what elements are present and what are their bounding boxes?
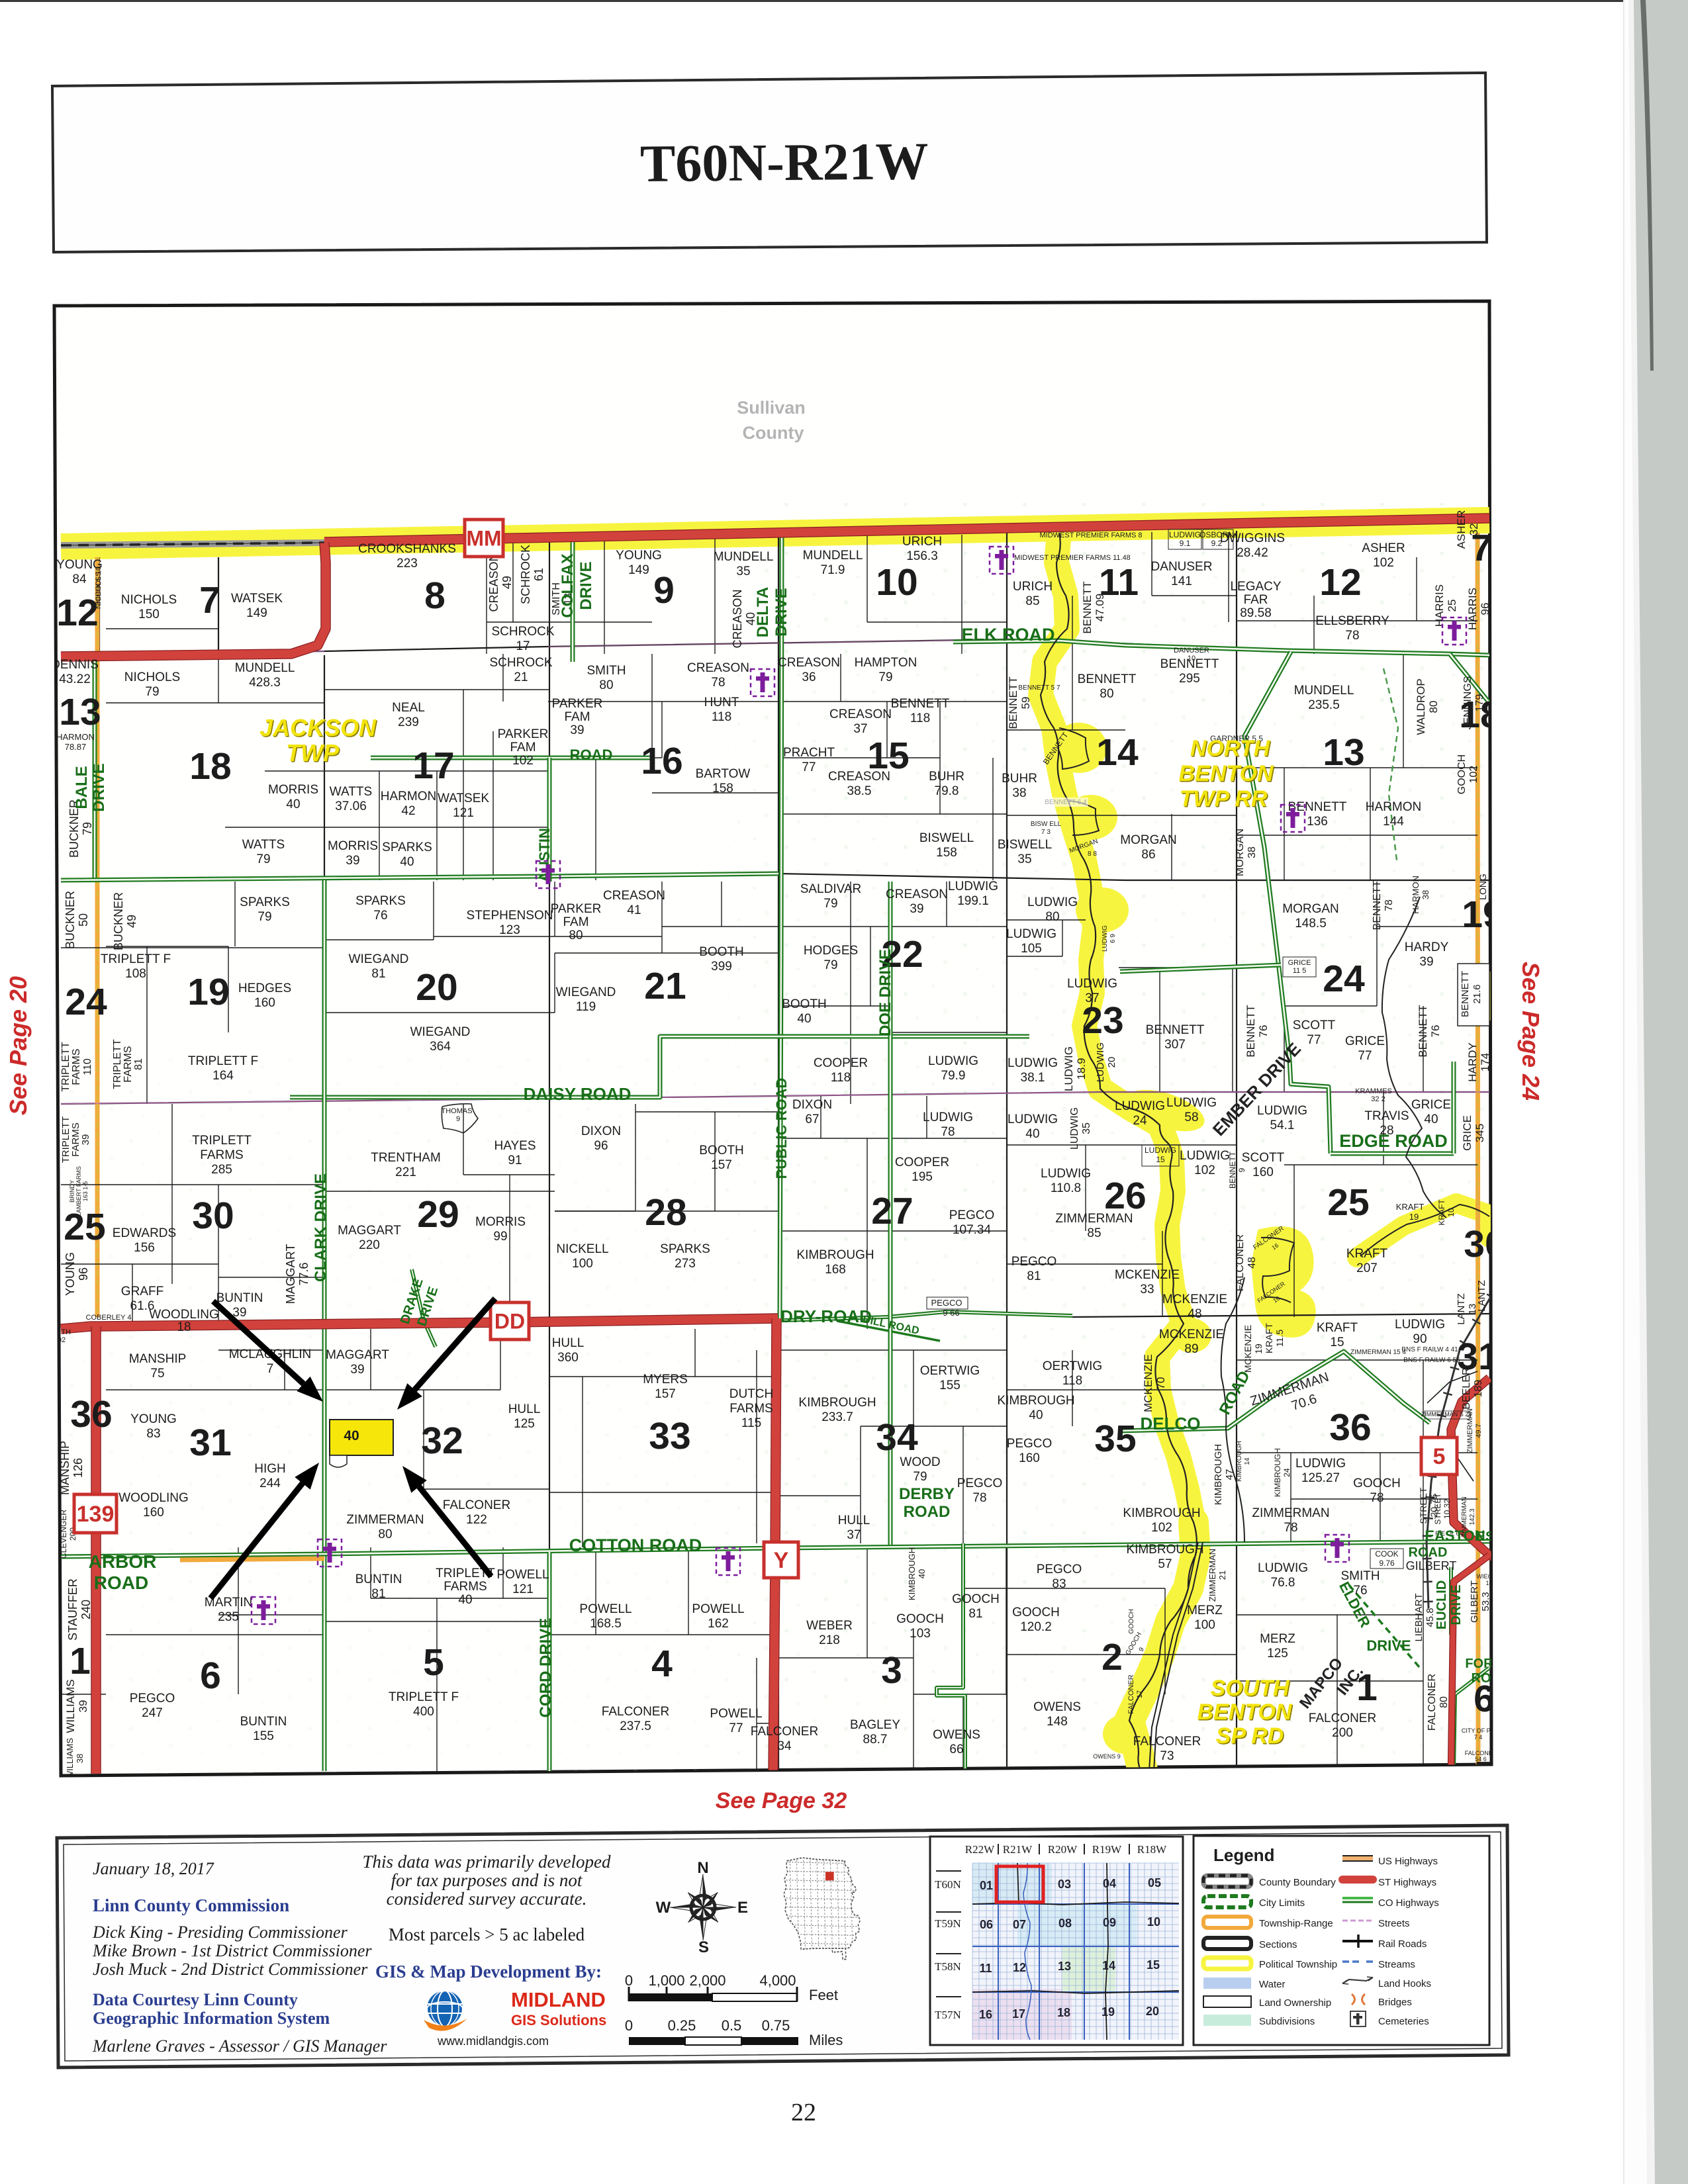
svg-text:CREASON: CREASON bbox=[778, 656, 840, 670]
svg-text:LUDWIG: LUDWIG bbox=[1102, 925, 1109, 952]
svg-text:21: 21 bbox=[1217, 1570, 1227, 1580]
svg-text:TRENTHAM: TRENTHAM bbox=[371, 1151, 441, 1165]
svg-text:26: 26 bbox=[1104, 1175, 1146, 1217]
svg-text:78: 78 bbox=[972, 1491, 986, 1505]
svg-text:Legend: Legend bbox=[1213, 1845, 1274, 1865]
svg-text:US Highways: US Highways bbox=[1378, 1856, 1438, 1867]
svg-text:HARMON: HARMON bbox=[56, 732, 95, 742]
svg-text:SCHROCK: SCHROCK bbox=[489, 656, 552, 670]
svg-text:15: 15 bbox=[1147, 1958, 1160, 1972]
svg-text:BRINDY: BRINDY bbox=[69, 1180, 75, 1203]
svg-text:364: 364 bbox=[430, 1040, 451, 1054]
svg-text:103: 103 bbox=[910, 1627, 931, 1641]
svg-text:155: 155 bbox=[939, 1379, 961, 1392]
svg-text:100: 100 bbox=[572, 1257, 593, 1271]
svg-text:R20W: R20W bbox=[1048, 1843, 1078, 1856]
svg-text:25: 25 bbox=[1327, 1181, 1369, 1224]
svg-text:Dick King - Presiding Commissi: Dick King - Presiding Commissioner bbox=[92, 1923, 348, 1942]
svg-text:DRIVE: DRIVE bbox=[1449, 1584, 1464, 1625]
svg-text:R18W: R18W bbox=[1137, 1843, 1167, 1856]
svg-text:MAGGART: MAGGART bbox=[284, 1244, 297, 1304]
svg-text:www.midlandgis.com: www.midlandgis.com bbox=[437, 2034, 549, 2048]
svg-text:71.9: 71.9 bbox=[821, 563, 845, 577]
svg-text:25: 25 bbox=[64, 1206, 105, 1248]
svg-text:WEBER: WEBER bbox=[806, 1619, 853, 1633]
svg-text:KIMBROUGH: KIMBROUGH bbox=[1273, 1448, 1282, 1497]
svg-text:CREASON: CREASON bbox=[828, 770, 890, 784]
svg-text:39: 39 bbox=[570, 723, 584, 737]
svg-text:CREASON: CREASON bbox=[487, 553, 500, 612]
svg-text:BENTON: BENTON bbox=[1197, 1700, 1293, 1725]
svg-text:PEGCO: PEGCO bbox=[1037, 1563, 1082, 1576]
svg-text:200: 200 bbox=[1332, 1726, 1353, 1740]
svg-text:YOUNG: YOUNG bbox=[130, 1412, 177, 1426]
svg-text:160: 160 bbox=[1252, 1165, 1274, 1179]
svg-text:T60N: T60N bbox=[935, 1878, 961, 1891]
svg-text:Streets: Streets bbox=[1378, 1918, 1410, 1929]
svg-text:T60N-R21W: T60N-R21W bbox=[640, 132, 929, 193]
svg-text:78: 78 bbox=[1383, 899, 1395, 911]
svg-text:OERTWIG: OERTWIG bbox=[920, 1364, 980, 1378]
svg-text:MUNDELL: MUNDELL bbox=[714, 550, 774, 564]
svg-text:38: 38 bbox=[1421, 890, 1430, 899]
svg-text:24: 24 bbox=[1282, 1468, 1291, 1477]
svg-text:DIXON: DIXON bbox=[792, 1098, 832, 1112]
svg-text:TWP RR: TWP RR bbox=[1180, 786, 1268, 811]
svg-text:239: 239 bbox=[398, 715, 419, 729]
svg-text:32: 32 bbox=[1468, 523, 1480, 536]
svg-text:18: 18 bbox=[189, 745, 231, 788]
svg-text:1: 1 bbox=[70, 1640, 91, 1682]
svg-text:123: 123 bbox=[499, 923, 520, 937]
svg-text:81: 81 bbox=[371, 967, 385, 981]
svg-text:ROAD: ROAD bbox=[1409, 1545, 1448, 1560]
svg-text:125: 125 bbox=[1267, 1647, 1288, 1661]
svg-text:5: 5 bbox=[1433, 1444, 1446, 1469]
svg-text:Josh Muck - 2nd District Commi: Josh Muck - 2nd District Commissioner bbox=[93, 1960, 368, 1979]
svg-text:E: E bbox=[737, 1899, 748, 1917]
svg-text:BENNETT: BENNETT bbox=[1288, 800, 1347, 814]
svg-text:6 9: 6 9 bbox=[1109, 934, 1117, 943]
svg-text:10: 10 bbox=[876, 561, 917, 604]
svg-text:BUHR: BUHR bbox=[1002, 772, 1037, 786]
svg-text:FARMS: FARMS bbox=[71, 1048, 82, 1085]
svg-text:125: 125 bbox=[514, 1417, 535, 1431]
svg-text:ZIMMERMAN: ZIMMERMAN bbox=[346, 1513, 424, 1527]
svg-text:BALE: BALE bbox=[73, 766, 91, 809]
svg-text:76: 76 bbox=[1257, 1025, 1270, 1038]
svg-text:76.8: 76.8 bbox=[1271, 1576, 1295, 1590]
svg-text:Feet: Feet bbox=[809, 1987, 838, 2003]
svg-text:T58N: T58N bbox=[935, 1960, 961, 1973]
svg-text:COOPER: COOPER bbox=[814, 1056, 868, 1070]
svg-text:122: 122 bbox=[466, 1513, 487, 1527]
svg-text:LUDWIG: LUDWIG bbox=[1295, 1457, 1346, 1471]
svg-text:BENNETT: BENNETT bbox=[1078, 672, 1137, 686]
svg-text:160: 160 bbox=[143, 1506, 164, 1520]
svg-text:195: 195 bbox=[912, 1170, 933, 1184]
svg-text:15: 15 bbox=[1330, 1336, 1344, 1349]
svg-text:273: 273 bbox=[675, 1257, 696, 1271]
svg-text:84: 84 bbox=[72, 572, 87, 586]
svg-text:EDWARDS: EDWARDS bbox=[113, 1226, 176, 1240]
svg-text:400: 400 bbox=[413, 1705, 434, 1719]
svg-text:2: 2 bbox=[1102, 1636, 1123, 1678]
svg-text:DENNIS: DENNIS bbox=[51, 658, 99, 672]
svg-text:77.6: 77.6 bbox=[297, 1262, 310, 1285]
svg-text:156.3: 156.3 bbox=[906, 549, 938, 563]
svg-text:61: 61 bbox=[532, 568, 545, 581]
svg-text:121: 121 bbox=[512, 1582, 534, 1596]
svg-text:96: 96 bbox=[77, 1267, 90, 1281]
svg-text:20: 20 bbox=[1106, 1057, 1117, 1068]
svg-text:73: 73 bbox=[1160, 1749, 1174, 1763]
svg-text:107.34: 107.34 bbox=[953, 1223, 992, 1237]
svg-text:118: 118 bbox=[831, 1071, 851, 1085]
svg-text:Streams: Streams bbox=[1378, 1959, 1415, 1970]
svg-text:220: 220 bbox=[359, 1238, 380, 1252]
svg-text:10: 10 bbox=[1147, 1915, 1160, 1929]
svg-text:79: 79 bbox=[913, 1470, 927, 1484]
svg-text:78.87: 78.87 bbox=[65, 742, 87, 752]
svg-text:149: 149 bbox=[246, 606, 267, 620]
svg-text:YOUNG: YOUNG bbox=[64, 1252, 77, 1296]
svg-text:EUCLID: EUCLID bbox=[1434, 1580, 1449, 1629]
svg-text:LAMBERT FARMS: LAMBERT FARMS bbox=[75, 1166, 82, 1216]
svg-text:38.5: 38.5 bbox=[847, 784, 872, 798]
svg-text:91: 91 bbox=[508, 1154, 522, 1167]
svg-text:LUDWIG: LUDWIG bbox=[928, 1054, 978, 1068]
svg-text:MCKENZIE: MCKENZIE bbox=[1243, 1325, 1253, 1373]
svg-text:40: 40 bbox=[286, 797, 300, 811]
svg-text:BISW ELL: BISW ELL bbox=[1031, 821, 1062, 828]
svg-text:MM: MM bbox=[466, 527, 501, 551]
svg-text:N: N bbox=[697, 1859, 708, 1877]
svg-text:SPARKS: SPARKS bbox=[355, 894, 406, 908]
svg-text:85: 85 bbox=[1087, 1226, 1101, 1240]
svg-text:79: 79 bbox=[258, 910, 271, 924]
svg-text:247: 247 bbox=[142, 1706, 163, 1720]
svg-text:21: 21 bbox=[644, 965, 686, 1007]
svg-text:FAM: FAM bbox=[510, 741, 536, 754]
svg-text:for tax purposes and is not: for tax purposes and is not bbox=[391, 1870, 583, 1890]
svg-text:OERTWIG: OERTWIG bbox=[1043, 1359, 1102, 1373]
svg-text:GOOCH: GOOCH bbox=[1456, 754, 1468, 794]
svg-text:119: 119 bbox=[576, 1000, 596, 1014]
svg-text:85: 85 bbox=[1025, 594, 1039, 608]
svg-text:9: 9 bbox=[653, 569, 675, 612]
svg-text:STREET: STREET bbox=[1433, 1493, 1442, 1525]
svg-text:01: 01 bbox=[980, 1879, 993, 1892]
svg-text:102: 102 bbox=[1151, 1521, 1172, 1535]
svg-text:MORRIS: MORRIS bbox=[328, 839, 378, 853]
svg-text:S: S bbox=[698, 1938, 709, 1956]
svg-text:LUDWIG: LUDWIG bbox=[1006, 927, 1056, 941]
svg-text:SCOTT: SCOTT bbox=[1293, 1019, 1336, 1032]
svg-text:W: W bbox=[656, 1899, 671, 1917]
svg-text:80: 80 bbox=[378, 1527, 392, 1541]
svg-text:PEGCO: PEGCO bbox=[931, 1298, 962, 1308]
svg-text:7: 7 bbox=[199, 579, 220, 621]
svg-text:240: 240 bbox=[79, 1600, 93, 1619]
svg-text:YOUNG: YOUNG bbox=[616, 549, 662, 563]
svg-text:78: 78 bbox=[1370, 1491, 1383, 1505]
svg-text:Data Courtesy Linn County: Data Courtesy Linn County bbox=[93, 1990, 298, 2009]
svg-text:R19W: R19W bbox=[1092, 1843, 1122, 1856]
svg-text:KIMBROUGH: KIMBROUGH bbox=[1123, 1506, 1200, 1520]
svg-text:20: 20 bbox=[1146, 2005, 1159, 2018]
svg-text:FARMS: FARMS bbox=[729, 1402, 773, 1416]
svg-text:HARDY: HARDY bbox=[1405, 940, 1449, 954]
svg-text:PUBLIC ROAD: PUBLIC ROAD bbox=[773, 1078, 790, 1179]
svg-text:12: 12 bbox=[1319, 561, 1361, 604]
svg-text:Most parcels > 5 ac labeled: Most parcels > 5 ac labeled bbox=[389, 1925, 585, 1944]
svg-text:COTTON ROAD: COTTON ROAD bbox=[569, 1535, 702, 1555]
svg-text:KIMBROUGH: KIMBROUGH bbox=[798, 1396, 876, 1410]
svg-text:121: 121 bbox=[453, 806, 474, 820]
svg-text:CORD DRIVE: CORD DRIVE bbox=[537, 1618, 555, 1718]
svg-text:28: 28 bbox=[645, 1191, 686, 1234]
svg-text:14: 14 bbox=[1102, 1959, 1115, 1972]
svg-text:235: 235 bbox=[218, 1610, 239, 1624]
svg-text:STREET: STREET bbox=[1418, 1487, 1429, 1524]
svg-text:TRIPLETT F: TRIPLETT F bbox=[101, 952, 171, 966]
svg-text:237.5: 237.5 bbox=[620, 1719, 651, 1733]
svg-text:WATSEK: WATSEK bbox=[231, 592, 283, 606]
svg-text:POWELL: POWELL bbox=[710, 1707, 762, 1721]
svg-text:157: 157 bbox=[711, 1158, 732, 1172]
svg-text:54 6: 54 6 bbox=[1475, 1756, 1487, 1762]
svg-text:HARMON: HARMON bbox=[1366, 800, 1421, 814]
svg-text:125.27: 125.27 bbox=[1301, 1471, 1340, 1485]
svg-text:GRICE: GRICE bbox=[1288, 959, 1311, 967]
svg-text:FALCONER: FALCONER bbox=[443, 1498, 510, 1512]
svg-text:81: 81 bbox=[1027, 1269, 1041, 1283]
svg-text:This data was primarily develo: This data was primarily developed bbox=[363, 1852, 611, 1872]
svg-text:LUDWIG: LUDWIG bbox=[1115, 1099, 1165, 1113]
svg-text:38.1: 38.1 bbox=[1021, 1071, 1045, 1085]
svg-text:LUDWIG: LUDWIG bbox=[1095, 1042, 1106, 1082]
svg-text:WOODLING: WOODLING bbox=[149, 1308, 219, 1322]
svg-text:GILBERT: GILBERT bbox=[1469, 1580, 1480, 1623]
svg-text:38: 38 bbox=[1246, 846, 1258, 858]
svg-text:360: 360 bbox=[557, 1351, 579, 1365]
svg-text:KIMBROUGH: KIMBROUGH bbox=[907, 1547, 917, 1600]
svg-text:SPARKS: SPARKS bbox=[240, 895, 290, 909]
svg-text:100: 100 bbox=[1194, 1618, 1215, 1632]
svg-text:80: 80 bbox=[569, 929, 583, 942]
svg-text:KIMBROUGH: KIMBROUGH bbox=[1213, 1444, 1224, 1506]
svg-text:157: 157 bbox=[655, 1387, 676, 1401]
svg-text:LIEBHART: LIEBHART bbox=[1413, 1593, 1425, 1641]
svg-text:BAGLEY: BAGLEY bbox=[850, 1718, 900, 1732]
svg-text:40: 40 bbox=[344, 1428, 359, 1443]
svg-text:GRAFF: GRAFF bbox=[121, 1285, 164, 1298]
svg-text:STAUFFER: STAUFFER bbox=[66, 1578, 79, 1641]
svg-text:47.09: 47.09 bbox=[1094, 594, 1106, 622]
svg-text:See Page 32: See Page 32 bbox=[716, 1788, 847, 1813]
svg-text:16: 16 bbox=[641, 740, 682, 782]
svg-text:2,000: 2,000 bbox=[689, 1972, 726, 1989]
svg-text:ZIMMERMAN: ZIMMERMAN bbox=[1252, 1506, 1329, 1520]
svg-text:MAGGART: MAGGART bbox=[326, 1348, 389, 1362]
svg-text:22: 22 bbox=[791, 2099, 816, 2126]
svg-text:County: County bbox=[743, 423, 804, 443]
svg-text:BOOTH: BOOTH bbox=[782, 997, 827, 1011]
svg-text:WIEGAND: WIEGAND bbox=[349, 952, 409, 966]
svg-text:LUDWIG: LUDWIG bbox=[1041, 1167, 1091, 1181]
svg-text:ARBOR: ARBOR bbox=[89, 1551, 157, 1572]
svg-text:233.7: 233.7 bbox=[821, 1410, 853, 1424]
svg-text:LUDWIG: LUDWIG bbox=[1027, 895, 1078, 909]
svg-text:118: 118 bbox=[712, 710, 731, 724]
svg-text:59: 59 bbox=[1019, 697, 1032, 709]
svg-text:FAM: FAM bbox=[563, 915, 588, 929]
svg-text:16: 16 bbox=[979, 2008, 992, 2021]
svg-text:39: 39 bbox=[350, 1363, 364, 1377]
svg-text:40: 40 bbox=[458, 1593, 472, 1607]
svg-text:BOOTH: BOOTH bbox=[699, 945, 744, 959]
svg-text:42: 42 bbox=[401, 804, 415, 818]
svg-text:FALCONER: FALCONER bbox=[751, 1725, 818, 1739]
svg-text:ROAD: ROAD bbox=[904, 1503, 951, 1521]
svg-text:JENNINGS: JENNINGS bbox=[1462, 676, 1474, 730]
svg-text:FARMS: FARMS bbox=[200, 1148, 243, 1162]
svg-text:58: 58 bbox=[1184, 1111, 1198, 1124]
svg-text:30: 30 bbox=[192, 1195, 234, 1237]
svg-text:38: 38 bbox=[75, 1754, 85, 1763]
svg-text:WATSEK: WATSEK bbox=[438, 792, 489, 805]
svg-text:33: 33 bbox=[649, 1415, 690, 1457]
svg-text:179: 179 bbox=[1474, 694, 1485, 712]
svg-text:223: 223 bbox=[397, 557, 418, 570]
svg-text:81: 81 bbox=[371, 1587, 385, 1601]
svg-text:162: 162 bbox=[708, 1617, 729, 1631]
svg-text:18: 18 bbox=[1057, 2006, 1070, 2019]
svg-text:35: 35 bbox=[736, 565, 750, 578]
svg-text:KIMBROUGH: KIMBROUGH bbox=[1126, 1543, 1203, 1557]
svg-text:GOOCH: GOOCH bbox=[896, 1612, 944, 1626]
svg-text:MORRIS: MORRIS bbox=[268, 783, 318, 797]
svg-text:WILLIAMS: WILLIAMS bbox=[65, 1738, 75, 1779]
svg-text:0.5: 0.5 bbox=[722, 2017, 742, 2034]
svg-text:18: 18 bbox=[177, 1320, 191, 1334]
svg-text:21.6: 21.6 bbox=[1472, 984, 1483, 1003]
svg-text:HARMON: HARMON bbox=[381, 790, 436, 803]
svg-text:12: 12 bbox=[1013, 1961, 1026, 1974]
svg-text:ELLSBERRY: ELLSBERRY bbox=[1315, 614, 1389, 628]
svg-text:BENNETT: BENNETT bbox=[1417, 1005, 1429, 1057]
svg-text:ASHER: ASHER bbox=[1455, 510, 1468, 549]
svg-text:CREASON: CREASON bbox=[829, 707, 892, 721]
svg-text:GILBERT: GILBERT bbox=[1406, 1559, 1457, 1572]
svg-text:168: 168 bbox=[825, 1263, 846, 1277]
svg-text:COOPER: COOPER bbox=[895, 1156, 949, 1169]
svg-text:BNS F RAILW 6 56: BNS F RAILW 6 56 bbox=[1403, 1357, 1460, 1364]
svg-text:NORTH: NORTH bbox=[1190, 736, 1271, 761]
svg-text:FALCONER: FALCONER bbox=[1133, 1735, 1201, 1749]
svg-text:80: 80 bbox=[1438, 1696, 1450, 1708]
svg-text:BENNETT: BENNETT bbox=[1372, 880, 1383, 930]
svg-text:0.25: 0.25 bbox=[668, 2017, 696, 2034]
svg-text:79: 79 bbox=[256, 852, 270, 866]
svg-text:Y: Y bbox=[774, 1548, 789, 1573]
svg-text:96: 96 bbox=[594, 1139, 608, 1153]
svg-text:37.06: 37.06 bbox=[335, 799, 367, 813]
svg-text:CREASON: CREASON bbox=[886, 887, 948, 901]
svg-text:T59N: T59N bbox=[935, 1917, 961, 1930]
svg-text:40: 40 bbox=[917, 1569, 927, 1578]
svg-text:SCHROCK: SCHROCK bbox=[519, 545, 532, 604]
svg-text:COLFAX: COLFAX bbox=[559, 553, 577, 617]
svg-text:MERZ: MERZ bbox=[1187, 1604, 1223, 1617]
svg-text:MORGAN: MORGAN bbox=[1235, 829, 1246, 876]
svg-text:FALCONER: FALCONER bbox=[1235, 1234, 1246, 1291]
svg-text:ROAD: ROAD bbox=[570, 747, 613, 763]
svg-text:24: 24 bbox=[1133, 1114, 1147, 1128]
svg-text:99: 99 bbox=[493, 1230, 507, 1244]
svg-text:7 3: 7 3 bbox=[1041, 829, 1051, 836]
svg-text:11.5: 11.5 bbox=[1274, 1330, 1285, 1347]
svg-text:158: 158 bbox=[936, 846, 957, 860]
svg-text:SMITH: SMITH bbox=[586, 664, 626, 678]
svg-text:TWP: TWP bbox=[286, 739, 340, 766]
svg-text:STEPHENSON: STEPHENSON bbox=[467, 909, 553, 923]
svg-text:79: 79 bbox=[823, 897, 837, 911]
svg-text:160: 160 bbox=[254, 996, 275, 1010]
svg-text:FALCONER: FALCONER bbox=[1309, 1711, 1376, 1725]
svg-text:WALDROP: WALDROP bbox=[1415, 678, 1427, 735]
svg-text:14: 14 bbox=[1244, 1457, 1251, 1465]
svg-text:39: 39 bbox=[346, 854, 359, 868]
svg-text:OWENS 9: OWENS 9 bbox=[1093, 1753, 1121, 1760]
svg-text:GOOCH: GOOCH bbox=[1128, 1609, 1135, 1634]
svg-text:50: 50 bbox=[77, 913, 90, 927]
svg-text:R22W: R22W bbox=[965, 1843, 995, 1856]
svg-text:ZIMMERMAN S 24: ZIMMERMAN S 24 bbox=[1421, 1411, 1472, 1418]
svg-text:HARMON: HARMON bbox=[1411, 876, 1421, 914]
svg-text:PEGCO: PEGCO bbox=[130, 1692, 175, 1706]
svg-text:TRIPLETT: TRIPLETT bbox=[112, 1039, 123, 1089]
svg-text:Water: Water bbox=[1259, 1979, 1285, 1990]
svg-text:345: 345 bbox=[1474, 1124, 1486, 1142]
svg-text:DRY-ROAD: DRY-ROAD bbox=[780, 1306, 872, 1326]
svg-text:39: 39 bbox=[77, 1700, 89, 1713]
svg-text:CREASON: CREASON bbox=[603, 889, 665, 903]
svg-text:9: 9 bbox=[1237, 1167, 1246, 1172]
svg-text:428.3: 428.3 bbox=[249, 676, 281, 690]
svg-text:COBERLEY 4: COBERLEY 4 bbox=[86, 1314, 132, 1322]
svg-text:70: 70 bbox=[1154, 1377, 1167, 1390]
svg-text:27: 27 bbox=[871, 1190, 913, 1232]
svg-text:83: 83 bbox=[1052, 1577, 1066, 1591]
svg-text:Sections: Sections bbox=[1259, 1939, 1297, 1950]
svg-text:48: 48 bbox=[1246, 1257, 1258, 1269]
svg-text:118: 118 bbox=[1062, 1374, 1082, 1388]
svg-text:PARKER: PARKER bbox=[498, 727, 549, 741]
svg-text:164: 164 bbox=[212, 1069, 234, 1083]
svg-text:WOODLING: WOODLING bbox=[118, 1491, 189, 1505]
svg-text:ZIMMERMAN: ZIMMERMAN bbox=[1207, 1549, 1217, 1602]
svg-text:FALCONER: FALCONER bbox=[1127, 1674, 1135, 1713]
svg-text:MIDLAND: MIDLAND bbox=[511, 1988, 606, 2011]
svg-text:KRAFT: KRAFT bbox=[1346, 1247, 1388, 1261]
svg-text:MORGAN: MORGAN bbox=[1282, 902, 1339, 916]
svg-text:LUDWIG: LUDWIG bbox=[1069, 1107, 1080, 1150]
svg-text:CLEVENGER: CLEVENGER bbox=[59, 1510, 68, 1559]
svg-text:DANUSER: DANUSER bbox=[1151, 560, 1213, 574]
svg-text:BISWELL: BISWELL bbox=[998, 838, 1052, 852]
